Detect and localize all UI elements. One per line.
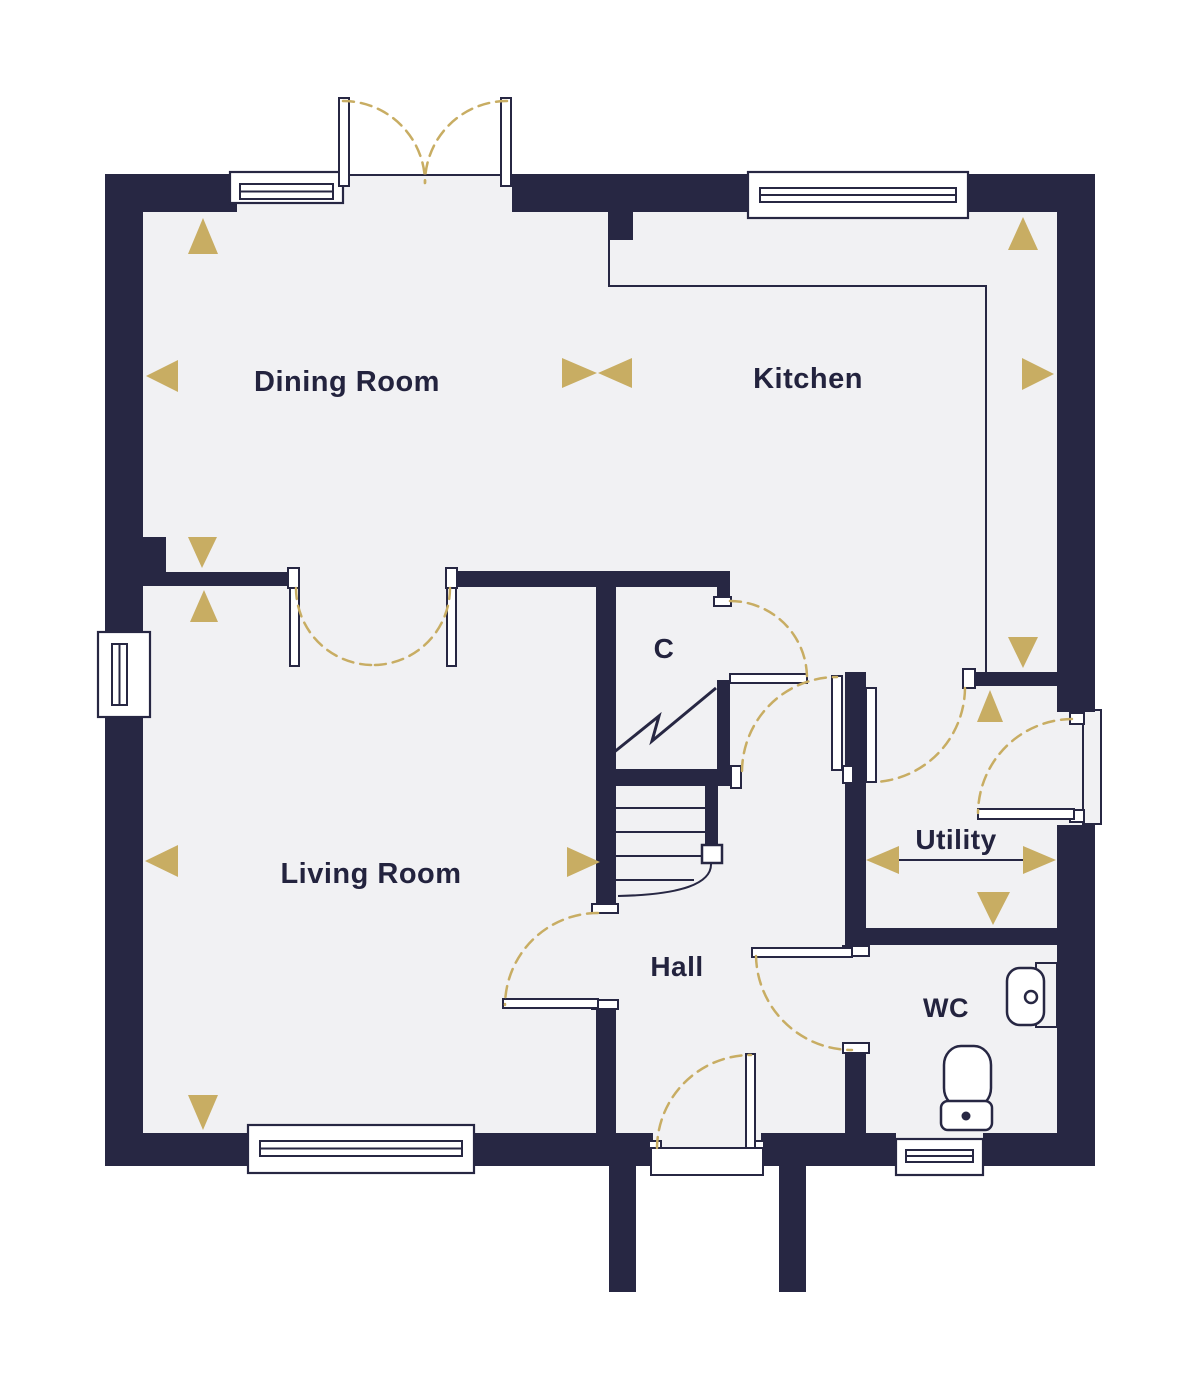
wc-label: WC bbox=[923, 993, 969, 1023]
kitchen-window bbox=[748, 172, 968, 218]
stair-newel-post bbox=[702, 845, 722, 863]
porch-wall-left bbox=[609, 1165, 636, 1292]
patio-double-doors bbox=[339, 98, 512, 186]
cupboard-label: C bbox=[654, 633, 675, 664]
living-room-side-window bbox=[98, 632, 150, 717]
utility-door-recess bbox=[1083, 710, 1101, 824]
utility-label: Utility bbox=[915, 824, 996, 855]
wc-toilet bbox=[941, 1046, 992, 1130]
dining-room-window bbox=[230, 172, 343, 203]
wc-window bbox=[896, 1139, 983, 1175]
porch-wall-right bbox=[779, 1165, 806, 1292]
dining-room-label: Dining Room bbox=[254, 366, 440, 398]
floor-plan-drawing: Dining Room Kitchen Living Room Hall C U… bbox=[0, 0, 1200, 1383]
hall-label: Hall bbox=[650, 951, 703, 982]
floor-plan: Dining Room Kitchen Living Room Hall C U… bbox=[0, 0, 1200, 1383]
living-room-label: Living Room bbox=[280, 858, 461, 890]
living-room-front-window bbox=[248, 1125, 474, 1173]
kitchen-label: Kitchen bbox=[753, 363, 863, 395]
front-door-threshold bbox=[651, 1148, 763, 1175]
